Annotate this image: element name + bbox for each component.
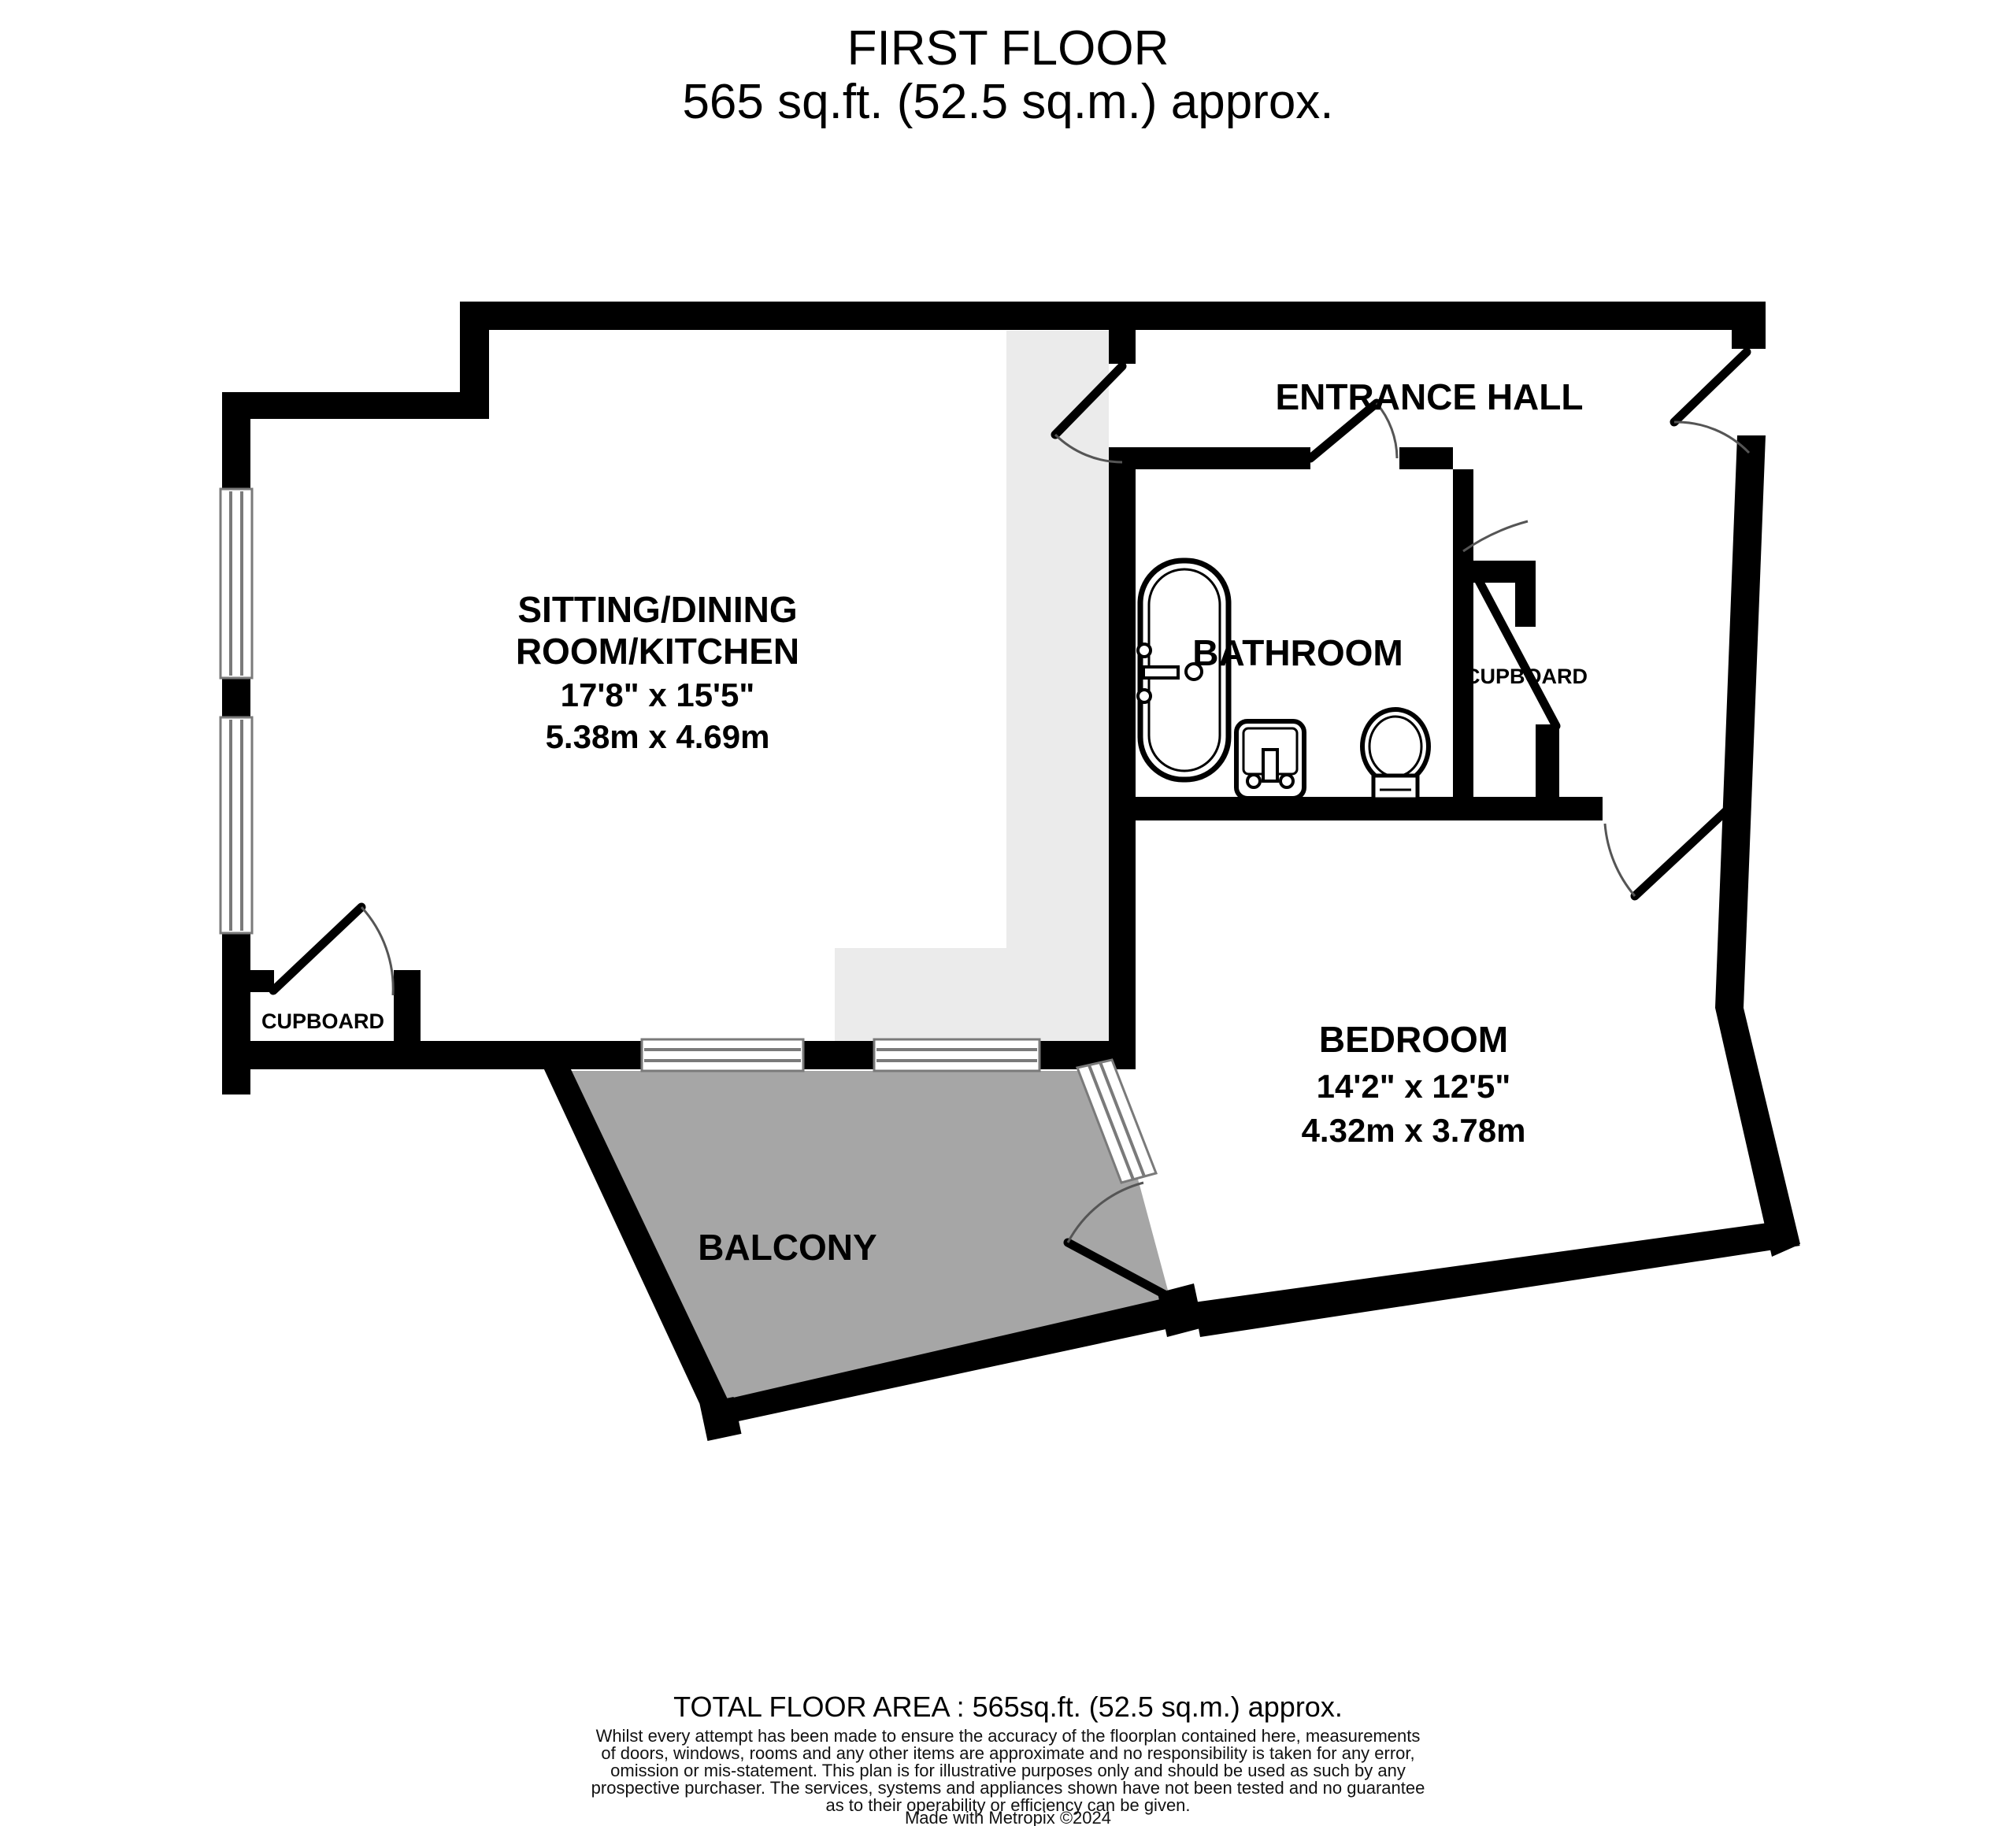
window-bottom-1 <box>642 1039 803 1071</box>
wall-hall-bedroom <box>1109 797 1603 820</box>
label-cupboard-hall: CUPBOARD <box>1465 665 1588 688</box>
wall-divider-main <box>1109 447 1136 1041</box>
window-left-2 <box>220 717 252 933</box>
floorplan-canvas: FIRST FLOOR 565 sq.ft. (52.5 sq.m.) appr… <box>0 0 2016 1826</box>
wall-right-upper <box>1715 435 1766 1008</box>
floorplan-page: FIRST FLOOR 565 sq.ft. (52.5 sq.m.) appr… <box>0 0 2016 1826</box>
label-entrance-hall: ENTRANCE HALL <box>1276 376 1584 417</box>
label-bathroom: BATHROOM <box>1192 632 1403 673</box>
wall-cupboard-hall-jamb-bottom <box>1536 724 1559 802</box>
wall-cupboard-hall-jamb-top <box>1515 561 1536 627</box>
wall-right-lower <box>1715 1008 1800 1257</box>
door-cupboard-sitting-leaf <box>273 907 361 991</box>
door-cupboard-sitting-arc <box>361 907 393 995</box>
label-bedroom-dims-imperial: 14'2" x 12'5" <box>1317 1068 1511 1105</box>
wall-cupboard-sitting-jamb <box>394 970 421 1046</box>
wall-bathroom-right <box>1453 469 1473 820</box>
kitchen-strip-fill-lower <box>835 948 1109 1043</box>
total-floor-area: TOTAL FLOOR AREA : 565sq.ft. (52.5 sq.m.… <box>673 1691 1343 1723</box>
bathroom-fixtures <box>1138 561 1429 799</box>
toilet-icon <box>1362 709 1429 799</box>
window-bottom-2 <box>874 1039 1039 1071</box>
floor-title: FIRST FLOOR <box>847 21 1169 76</box>
door-bedroom-arc <box>1605 824 1635 896</box>
floor-area-subtitle: 565 sq.ft. (52.5 sq.m.) approx. <box>682 75 1333 129</box>
wall-front-corner <box>1732 302 1766 349</box>
wall-bathroom-top-right <box>1399 447 1453 469</box>
label-balcony: BALCONY <box>698 1227 876 1268</box>
metropix-credit: Made with Metropix ©2024 <box>905 1808 1111 1826</box>
label-bedroom: BEDROOM <box>1319 1019 1508 1060</box>
wall-bedroom-bottom <box>1194 1222 1800 1337</box>
kitchen-strip-fill <box>1006 331 1109 953</box>
footer: TOTAL FLOOR AREA : 565sq.ft. (52.5 sq.m.… <box>591 1691 1425 1826</box>
label-sitting-dims-imperial: 17'8" x 15'5" <box>561 676 755 713</box>
wall-divider-stub <box>1109 302 1136 364</box>
window-left-1 <box>220 489 252 678</box>
label-cupboard-sitting: CUPBOARD <box>261 1009 384 1033</box>
label-sitting-line1: SITTING/DINING <box>517 589 797 630</box>
sink-icon <box>1236 721 1304 798</box>
wall-cupboard-sitting-stub <box>222 970 274 992</box>
wall-step-horizontal <box>222 392 489 419</box>
door-bedroom-leaf <box>1635 808 1729 896</box>
wall-bathroom-top-left <box>1109 447 1310 469</box>
door-front-leaf <box>1674 352 1747 422</box>
label-sitting-line2: ROOM/KITCHEN <box>516 631 799 672</box>
label-sitting-dims-metric: 5.38m x 4.69m <box>546 718 770 755</box>
label-bedroom-dims-metric: 4.32m x 3.78m <box>1302 1112 1526 1149</box>
